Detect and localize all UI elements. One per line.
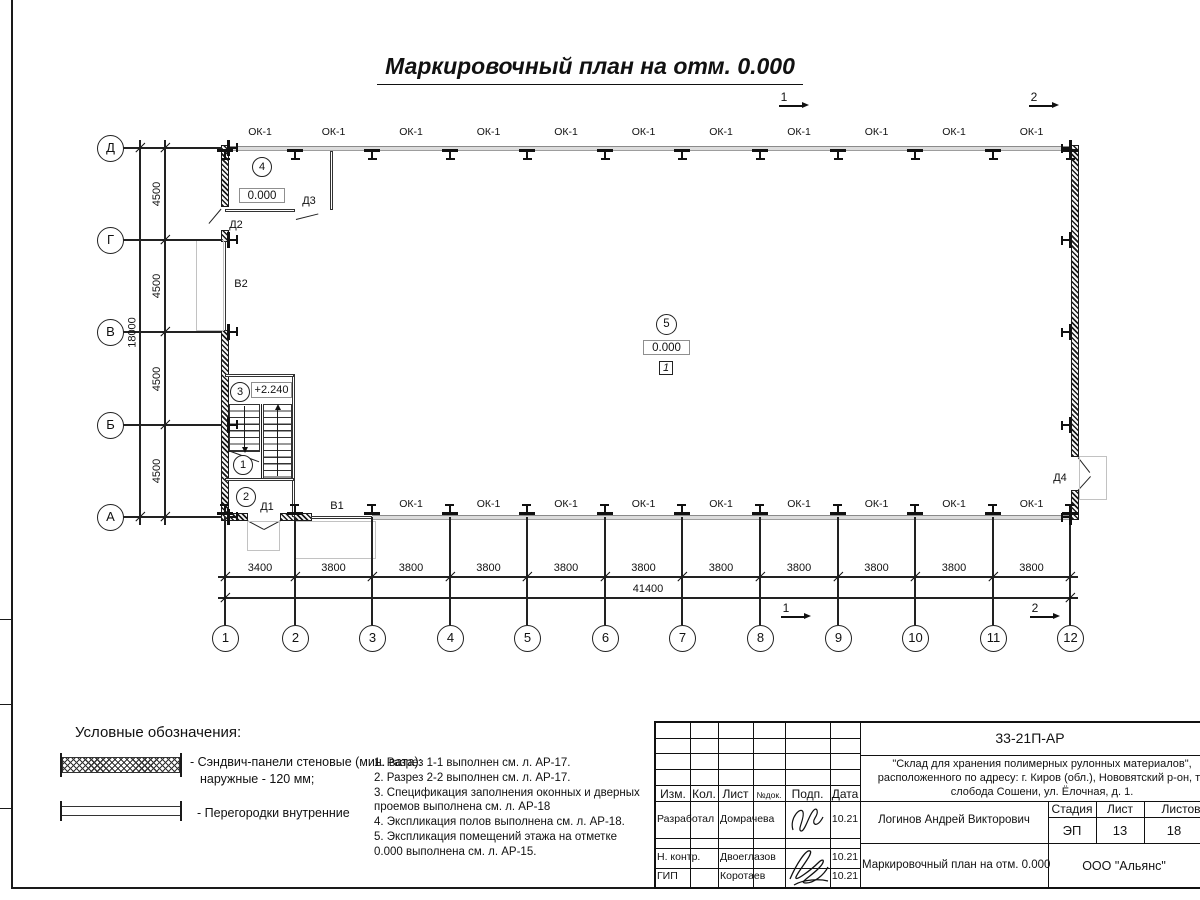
titleblock-name: Коротаев [720,870,765,882]
room-number-bubble: 2 [236,487,256,507]
titleblock-header-kol: Кол. [690,787,718,801]
titleblock-header-ndok: №док. [753,790,785,800]
grid-line [224,517,225,625]
axis-bubble: 2 [282,625,309,652]
axis-bubble: 12 [1057,625,1084,652]
dim-label: 4500 [150,451,164,491]
column-symbol [597,503,613,515]
window-label: ОК-1 [240,126,280,138]
grid-line [449,517,450,625]
axis-bubble: 4 [437,625,464,652]
titleblock-grid [718,723,719,887]
column-symbol [907,149,923,161]
column-symbol [830,149,846,161]
titleblock-name: Домрачева [720,813,774,825]
top-window-band [228,146,1072,151]
section-marker-arrow [1053,613,1060,619]
door-d2-swing [209,209,222,224]
stair-arrow-up [275,404,281,410]
titleblock-doc-number: 33-21П-АР [860,730,1200,746]
legend-item-label: - Перегородки внутренние [197,806,350,820]
titleblock-sheet-label: Лист [1096,802,1144,816]
titleblock-header-izm: Изм. [656,787,690,801]
grid-line [294,517,295,625]
dim-label: 3400 [235,562,285,574]
axis-bubble: 5 [514,625,541,652]
column-symbol [227,324,239,340]
note-line: 0.000 выполнена см. л. АР-15. [374,845,674,860]
titleblock-project-line: расположенного по адресу: г. Киров (обл.… [862,772,1200,784]
window-label: ОК-1 [779,126,819,138]
titleblock-role: Н. контр. [657,851,700,863]
porch-outline [247,521,280,551]
dim-line [218,597,1078,598]
column-symbol [287,149,303,161]
titleblock-name: Двоеглазов [720,851,776,863]
legend-symbol-end-tick [60,801,62,821]
window-label: ОК-1 [546,498,586,510]
titleblock-company: ООО "Альянс" [1048,859,1200,873]
porch-outline [294,521,376,559]
section-marker-arrow [1052,102,1059,108]
column-symbol [907,503,923,515]
floor-type-marker: 1 [659,361,673,375]
titleblock-grid [860,843,1200,844]
window-label: ОК-1 [391,498,431,510]
titleblock-header-podp: Подп. [785,787,830,801]
section-marker-line [779,105,802,106]
column-symbol [1060,232,1072,248]
axis-bubble: 3 [359,625,386,652]
column-symbol [674,503,690,515]
column-symbol [597,149,613,161]
legend-partition-symbol [62,806,180,816]
window-label: ОК-1 [1012,126,1052,138]
window-label: ОК-1 [469,498,509,510]
elevation-box: 0.000 [239,188,285,203]
room4-partition-right [330,151,333,210]
axis-bubble: В [97,319,124,346]
titleblock-drawing-name: Маркировочный план на отм. 0.000 [862,859,1046,871]
column-symbol [519,149,535,161]
column-symbol [364,503,380,515]
column-symbol [674,149,690,161]
note-line: 5. Экспликация помещений этажа на отметк… [374,830,674,845]
window-label: ОК-1 [469,126,509,138]
column-symbol [287,503,303,515]
dim-line [164,140,165,525]
titleblock-stage-value: ЭП [1048,823,1096,838]
partition-label-v2: В2 [228,278,254,290]
room4-partition-bottom [225,209,295,212]
titleblock-date: 10.21 [831,851,859,863]
porch-outline [196,240,224,331]
right-wall-segment [1072,146,1078,456]
dim-label: 3800 [464,562,514,574]
axis-bubble: Д [97,135,124,162]
axis-bubble: Г [97,227,124,254]
dim-label: 4500 [150,266,164,306]
door-d3-swing [296,213,319,220]
column-symbol [227,140,239,156]
column-symbol [364,149,380,161]
window-label: ОК-1 [624,498,664,510]
titleblock-sheet-value: 13 [1096,823,1144,838]
column-symbol [227,232,239,248]
column-symbol [985,149,1001,161]
door-label-d1: Д1 [255,501,279,513]
axis-line [123,239,222,240]
dim-label: 3800 [852,562,902,574]
section-marker-number: 2 [1028,601,1042,615]
section-marker-number: 1 [779,601,793,615]
section-marker-number: 2 [1027,90,1041,104]
column-symbol [752,149,768,161]
column-symbol [985,503,1001,515]
window-label: ОК-1 [857,498,897,510]
window-label: ОК-1 [314,126,354,138]
column-symbol [227,417,239,433]
titleblock-header-list: Лист [718,787,753,801]
titleblock-grid [656,769,860,770]
axis-bubble: 6 [592,625,619,652]
titleblock-grid [656,753,860,754]
grid-line [604,517,605,625]
note-line: 1. Разрез 1-1 выполнен см. л. АР-17. [374,756,674,771]
door-label-d4: Д4 [1047,472,1073,484]
titleblock-grid [1048,817,1200,818]
window-label: ОК-1 [779,498,819,510]
grid-line [526,517,527,625]
axis-bubble: 7 [669,625,696,652]
dim-line [139,140,140,525]
stair-partition-top [225,374,294,377]
legend-symbol-end-tick [180,801,182,821]
room-number-bubble: 5 [656,314,677,335]
dim-total-label: 18000 [127,313,140,353]
stair-divider [261,404,262,479]
note-line: проемов выполнена см. л. АР-18 [374,800,674,815]
stair-arrow-down [242,447,248,453]
window-label: ОК-1 [624,126,664,138]
column-symbol [1060,509,1072,525]
room-number-bubble: 4 [252,157,272,177]
column-symbol [519,503,535,515]
section-marker-line [781,616,804,617]
note-line: 2. Разрез 2-2 выполнен см. л. АР-17. [374,771,674,786]
partition-label-v1: В1 [324,500,350,512]
grid-line [371,517,372,625]
window-label: ОК-1 [934,126,974,138]
legend-heading: Условные обозначения: [75,724,241,741]
section-marker-number: 1 [777,90,791,104]
window-label: ОК-1 [546,126,586,138]
signature [787,804,829,836]
legend-symbol-end-tick [60,753,62,777]
dim-label: 3800 [1007,562,1057,574]
door-label-d2: Д2 [224,219,248,231]
door-label-d3: Д3 [296,195,322,207]
note-line: 3. Спецификация заполнения оконных и две… [374,786,674,801]
partition-v1 [311,516,372,519]
notes-block: 1. Разрез 1-1 выполнен см. л. АР-17.2. Р… [374,756,674,860]
window-label: ОК-1 [1012,498,1052,510]
titleblock-grid [860,755,1200,756]
grid-line [1069,517,1070,625]
titleblock-role: ГИП [657,870,678,882]
column-symbol [442,149,458,161]
elevation-box: 0.000 [643,340,690,355]
titleblock-date: 10.21 [831,813,859,825]
grid-line [914,517,915,625]
titleblock-role: Разработал [657,813,714,825]
window-label: ОК-1 [934,498,974,510]
dim-line [218,576,1078,577]
signature [786,845,832,887]
legend-sandwich-panel-symbol [62,757,180,773]
dim-label: 3800 [774,562,824,574]
window-label: ОК-1 [857,126,897,138]
dim-label: 4500 [150,359,164,399]
grid-line [759,517,760,625]
column-symbol [752,503,768,515]
column-symbol [1060,140,1072,156]
axis-bubble: 1 [212,625,239,652]
dim-label: 3800 [696,562,746,574]
column-symbol [442,503,458,515]
column-symbol [1060,417,1072,433]
titleblock-grid [656,738,860,739]
section-marker-arrow [802,102,809,108]
titleblock-chief-name: Логинов Андрей Викторович [862,814,1046,826]
dim-label: 4500 [150,174,164,214]
titleblock-header-data: Дата [830,787,860,801]
titleblock-grid [656,838,860,839]
section-marker-line [1029,105,1052,106]
titleblock-sheets-label: Листов [1150,802,1200,816]
elevation-box: +2.240 [251,382,292,398]
section-marker-arrow [804,613,811,619]
axis-bubble: 11 [980,625,1007,652]
room-number-bubble: 1 [233,455,253,475]
titleblock-sheets-value: 18 [1144,823,1200,838]
axis-bubble: Б [97,412,124,439]
dim-label: 3800 [386,562,436,574]
grid-line [837,517,838,625]
drawing-sheet: { "sheet": { "title": "Маркировочный пла… [0,0,1200,900]
note-line: 4. Экспликация полов выполнена см. л. АР… [374,815,674,830]
legend-item-label: наружные - 120 мм; [200,772,314,786]
titleblock-project-line: слобода Сошени, ул. Ёлочная, д. 1. [862,786,1200,798]
legend-symbol-end-tick [180,753,182,777]
window-label: ОК-1 [391,126,431,138]
dim-label: 3800 [309,562,359,574]
column-symbol [1060,324,1072,340]
section-marker-line [1030,616,1053,617]
grid-line [681,517,682,625]
titleblock-date: 10.21 [831,870,859,882]
grid-line [992,517,993,625]
room-number-bubble: 3 [230,382,250,402]
axis-line [123,424,222,425]
dim-total-label: 41400 [618,583,678,595]
window-label: ОК-1 [701,498,741,510]
axis-bubble: 8 [747,625,774,652]
column-symbol [227,509,239,525]
bottom-window-band [372,515,1072,520]
axis-bubble: А [97,504,124,531]
dim-label: 3800 [541,562,591,574]
axis-bubble: 9 [825,625,852,652]
dim-label: 3800 [929,562,979,574]
stair-wall-right [292,374,295,517]
dim-label: 3800 [619,562,669,574]
window-label: ОК-1 [701,126,741,138]
stair-arrow-line [244,406,245,448]
titleblock-stage-label: Стадия [1048,802,1096,816]
column-symbol [830,503,846,515]
titleblock-project-line: "Склад для хранения полимерных рулонных … [862,758,1200,770]
axis-bubble: 10 [902,625,929,652]
porch-outline [1079,456,1107,500]
titleblock-grid [656,785,860,786]
stair-arrow-line [277,410,278,476]
